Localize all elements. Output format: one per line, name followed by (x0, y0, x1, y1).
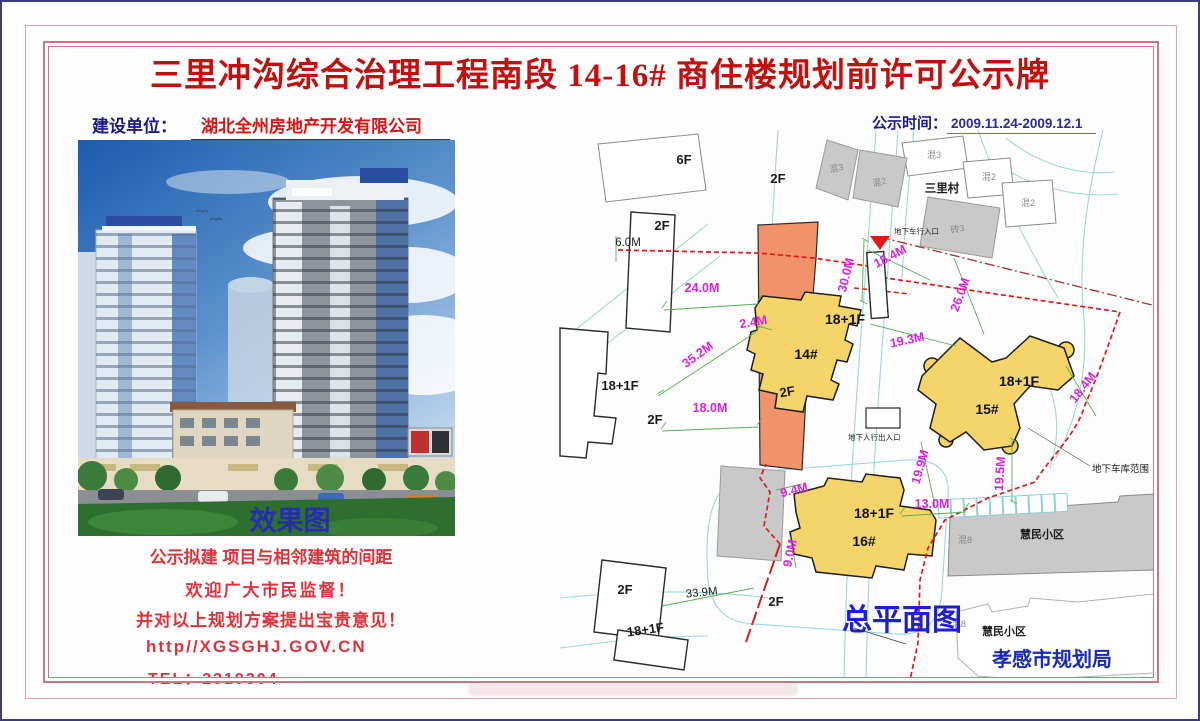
publish-time-value: 2009.11.24-2009.12.1 (947, 116, 1096, 134)
dim-label: 6.0M (615, 237, 641, 249)
neighbor-buildings-light (598, 134, 1154, 680)
village-label: 三里村 (925, 181, 960, 195)
builder-row: 建设单位：湖北全州房地产开发有限公司 (92, 112, 450, 137)
authority-label: 孝感市规划局 (991, 647, 1112, 671)
building-15-shape (918, 336, 1074, 450)
watermark (468, 683, 798, 696)
note-line-url: http//XGSGHJ.GOV.CN (146, 637, 528, 657)
ped-entry-label: 地下人行出入口 (848, 432, 901, 442)
building-15-no: 15# (975, 401, 999, 417)
building-16-no: 16# (852, 533, 876, 549)
note-line: 并对以上规划方案提出宝贵意见！ (80, 606, 462, 631)
page-title: 三里冲沟综合治理工程南段 14-16# 商住楼规划前许可公示牌 (60, 48, 1140, 96)
building-15-floors: 18+1F (999, 373, 1040, 389)
notice-board: 三里冲沟综合治理工程南段 14-16# 商住楼规划前许可公示牌 建设单位：湖北全… (0, 0, 1200, 721)
neighbor-buildings-dark-outline (560, 212, 688, 670)
vehicle-entry-label: 地下车行入口 (894, 226, 939, 236)
ped-entry-box (866, 408, 900, 428)
floor-label: 2F (778, 383, 796, 400)
publish-time-row: 公示时间：2009.11.24-2009.12.1 (872, 112, 1096, 133)
publish-time-label: 公示时间： (872, 115, 947, 132)
floor-label: 2F (768, 594, 783, 609)
note-line: 欢迎广大市民监督！ (80, 576, 462, 601)
floor-label: 2F (647, 412, 662, 427)
plan-caption: 总平面图 (842, 604, 962, 637)
dim-label: 26.0M (948, 276, 973, 313)
dim-label: 19.9M (909, 448, 932, 485)
estate-label: 慧民小区 (982, 624, 1026, 638)
building-14-no: 14# (794, 346, 818, 362)
floor-label: 2F (654, 218, 669, 233)
floor-label: 2F (770, 171, 785, 186)
site-plan: 24.0M 2.4M 35.2M 18.0M 30.0M 18.4M 26.0M… (558, 128, 1154, 686)
dim-label: 19.3M (889, 330, 926, 351)
building-16-shape (790, 474, 936, 578)
photo-caption: 效果图 (250, 506, 331, 536)
builder-name: 湖北全州房地产开发有限公司 (191, 117, 450, 141)
struct-label: 混8 (958, 535, 972, 545)
dim-label: 18.0M (693, 401, 728, 415)
vehicle-entry-arrow-icon (870, 236, 890, 250)
dim-label: 35.2M (679, 339, 715, 371)
floor-label: 2F (617, 582, 632, 597)
estate-label: 慧民小区 (1020, 527, 1064, 541)
dim-label: 9.0M (780, 538, 799, 568)
rendering-photo: 效果图 (78, 140, 455, 536)
struct-label: 混2 (982, 172, 996, 182)
dim-label: 13.0M (915, 497, 950, 511)
building-14-floors: 18+1F (825, 311, 866, 327)
garage-zone-label: 地下车库范围 (1092, 463, 1149, 475)
dim-label: 19.5M (992, 456, 1008, 492)
floor-label: 6F (676, 152, 691, 167)
note-line: 公示拟建 项目与相邻建筑的间距 (80, 543, 462, 568)
building-16-floors: 18+1F (854, 505, 895, 521)
struct-label: 混3 (927, 150, 941, 160)
floor-label: 18+1F (601, 378, 638, 393)
builder-label: 建设单位： (92, 117, 177, 136)
garage-zone-leader (1028, 428, 1090, 466)
struct-label: 混2 (1021, 198, 1035, 208)
dim-label: 24.0M (685, 281, 720, 295)
